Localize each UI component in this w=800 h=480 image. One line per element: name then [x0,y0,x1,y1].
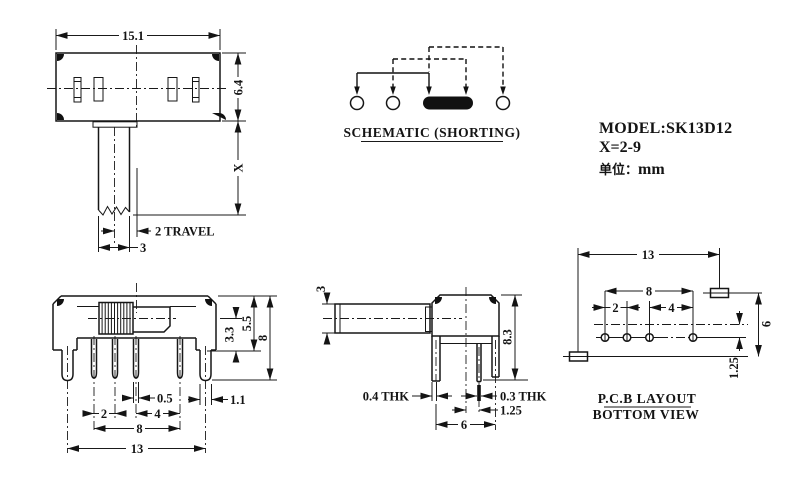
technical-drawing-canvas: 15.1 6.4 X 2 TRAVEL 3 [0,0,800,480]
knob-body [133,307,170,332]
side-view-callout-bracket-thickness: 0.4 THK [363,382,452,403]
unit-label: 单位： [599,162,638,177]
front-view-dim-bracket-width: 1.1 [188,384,246,407]
dim-label: 0.4 THK [363,389,410,403]
shaft-break-line [99,207,130,216]
front-view-dim-knob-height: 3.3 [207,307,261,362]
pcb-layout-title: P.C.B LAYOUT [598,391,696,406]
top-view-dim-travel: 2 TRAVEL [101,224,215,238]
pcb-dim-pitch-b: 4 [650,301,694,315]
top-view-corner-notches [57,54,226,120]
shorting-bar [423,97,473,110]
front-view: 3.3 5.5 8 0.5 1.1 [53,283,277,456]
dim-label: 3 [314,286,328,292]
front-view-dim-bracket-span: 13 [68,442,206,456]
dim-label: 4 [154,407,161,421]
pcb-layout-subtitle: BOTTOM VIEW [593,407,700,422]
terminal-circle-1 [351,97,364,110]
dim-label: 1.25 [727,357,741,379]
front-view-dim-pitch-a: 2 [83,407,126,421]
dim-label: 0.5 [157,391,173,405]
side-view-shaft [323,304,462,333]
dim-label: 15.1 [122,29,144,43]
side-view-dim-pin-offset: 1.25 [452,403,522,417]
top-view-dim-shaft-width: 3 [99,216,147,255]
dim-label: 8 [136,422,142,436]
dim-label: 8 [256,335,270,341]
title-block: MODEL:SK13D12 X=2-9 单位：mm [599,120,789,179]
body-corner-notch [489,297,496,304]
front-view-dim-pin-span: 8 [94,422,180,436]
dim-label: 6.4 [231,79,245,95]
front-view-dim-pitch-b: 4 [136,407,180,421]
unit-line: 单位：mm [599,159,789,179]
schematic: SCHEMATIC (SHORTING) [344,47,521,142]
dim-label: 5.5 [240,316,254,332]
schematic-arrows [354,87,506,96]
dim-label: 8.3 [500,329,514,345]
dim-label: 3.3 [222,327,236,343]
dim-label: 1.1 [230,393,246,407]
top-view: 15.1 6.4 X 2 TRAVEL 3 [47,29,246,255]
dim-label: 0.3 THK [500,389,547,403]
top-view-dim-shaft-length: X [133,121,246,215]
dim-label: 2 TRAVEL [155,224,215,238]
side-view-callout-pin-thickness: 0.3 THK [461,385,547,403]
dim-label: 1.25 [500,403,522,417]
side-view-dim-shaft-height: 3 [314,286,336,344]
dim-label: 8 [646,284,652,298]
dim-label: 13 [642,248,655,262]
side-view-legs [432,336,499,430]
model-number: MODEL:SK13D12 [599,120,789,138]
terminal-circle-3 [497,97,510,110]
drawing-sheet: 15.1 6.4 X 2 TRAVEL 3 [0,0,800,480]
schematic-title: SCHEMATIC (SHORTING) [344,125,521,140]
front-view-slider-knob [88,283,176,334]
dim-label: X [231,163,245,172]
x-range: X=2-9 [599,139,789,157]
top-view-shaft [93,122,137,243]
dim-label: 4 [668,301,675,315]
schematic-wiring [357,47,503,87]
pcb-dim-hole-offset: 1.25 [727,311,741,379]
dim-label: 6 [461,418,467,432]
side-view-body [432,287,499,413]
frame-corner-notch [205,299,212,306]
side-view: 3 8.3 0.4 THK 0.3 THK 1.25 [314,286,547,432]
frame-corner-notch [57,299,64,306]
dim-label: 2 [612,301,618,315]
top-view-dim-width: 15.1 [56,29,220,50]
pcb-layout: 13 8 2 4 6 1.25 [563,248,773,422]
pcb-dim-row-span: 6 [759,293,774,357]
dim-label: 3 [140,241,146,255]
body-corner-notch [435,297,442,304]
terminal-circle-2 [387,97,400,110]
side-view-dim-overall-height: 8.3 [483,295,528,380]
pcb-dim-pitch-a: 2 [592,301,640,315]
dim-label: 6 [759,321,773,327]
pcb-hole-row [596,333,746,341]
unit-value: mm [638,161,665,178]
front-view-dim-pin-width: 0.5 [122,382,173,405]
top-view-dim-height: 6.4 [222,53,246,121]
dim-label: 13 [131,442,144,456]
front-view-frame [53,296,216,350]
dim-label: 2 [101,407,107,421]
pcb-layout-caption: P.C.B LAYOUT BOTTOM VIEW [593,391,700,422]
